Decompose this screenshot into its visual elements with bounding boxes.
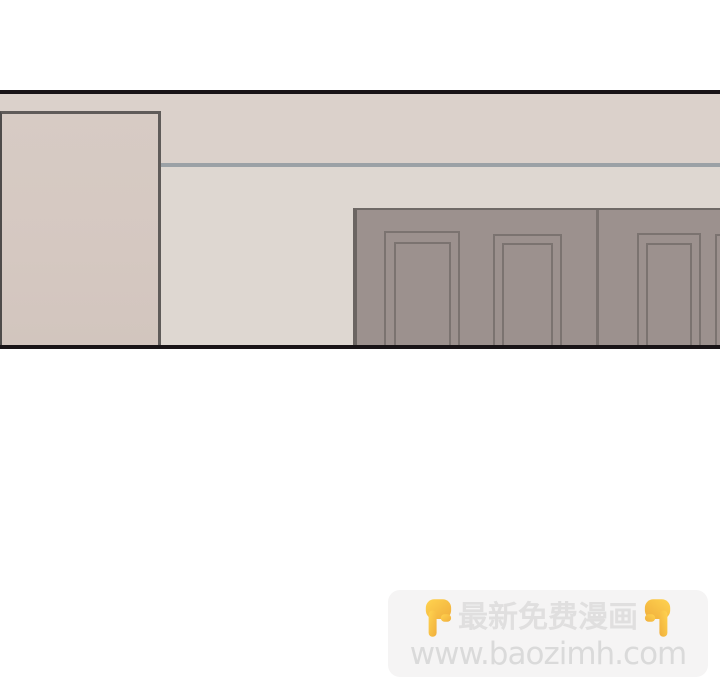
wall-column — [0, 111, 161, 345]
wardrobe-cabinet — [353, 208, 720, 345]
door-frame-partial-4 — [715, 234, 720, 345]
panel-bottom-border — [0, 345, 720, 349]
comic-page: 最新免费漫画 www.baozimh.com — [0, 0, 720, 700]
wardrobe-divider-line — [596, 210, 599, 345]
watermark-badge: 最新免费漫画 www.baozimh.com — [388, 590, 708, 677]
room-wall — [0, 94, 720, 345]
point-down-emoji — [423, 598, 453, 638]
watermark-title-row: 最新免费漫画 — [423, 598, 673, 638]
watermark-title: 最新免费漫画 — [458, 603, 638, 633]
watermark-url: www.baozimh.com — [410, 639, 687, 670]
door-frame-inner-2 — [502, 243, 553, 345]
point-down-emoji — [643, 598, 673, 638]
wall-trim-line — [160, 163, 720, 167]
door-frame-inner-3 — [646, 243, 692, 345]
door-frame-inner-1 — [394, 242, 451, 345]
